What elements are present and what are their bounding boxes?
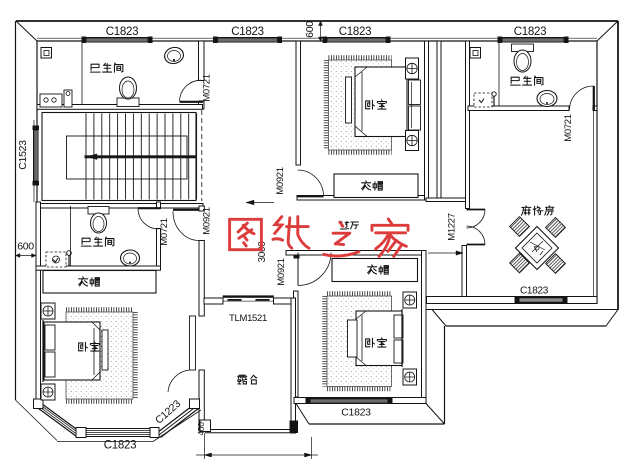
svg-text:C1823: C1823 bbox=[514, 26, 546, 38]
svg-text:M0921: M0921 bbox=[202, 207, 213, 235]
svg-text:C1823: C1823 bbox=[520, 286, 549, 297]
svg-text:M0721: M0721 bbox=[159, 218, 170, 246]
svg-text:C1823: C1823 bbox=[106, 26, 138, 38]
svg-text:C1823: C1823 bbox=[231, 26, 263, 38]
svg-text:600: 600 bbox=[17, 241, 34, 253]
svg-text:M0921: M0921 bbox=[275, 167, 286, 195]
svg-text:C1823: C1823 bbox=[104, 440, 136, 452]
svg-text:600: 600 bbox=[304, 21, 316, 38]
svg-text:M1227: M1227 bbox=[447, 213, 458, 241]
svg-text:400: 400 bbox=[196, 422, 206, 436]
svg-text:C1823: C1823 bbox=[341, 407, 371, 419]
svg-text:C1523: C1523 bbox=[17, 140, 29, 170]
svg-text:M0921: M0921 bbox=[276, 258, 287, 286]
svg-text:M0721: M0721 bbox=[202, 74, 213, 102]
svg-text:TLM1521: TLM1521 bbox=[229, 313, 267, 324]
svg-text:M0721: M0721 bbox=[563, 114, 574, 142]
svg-text:C1823: C1823 bbox=[339, 26, 371, 38]
